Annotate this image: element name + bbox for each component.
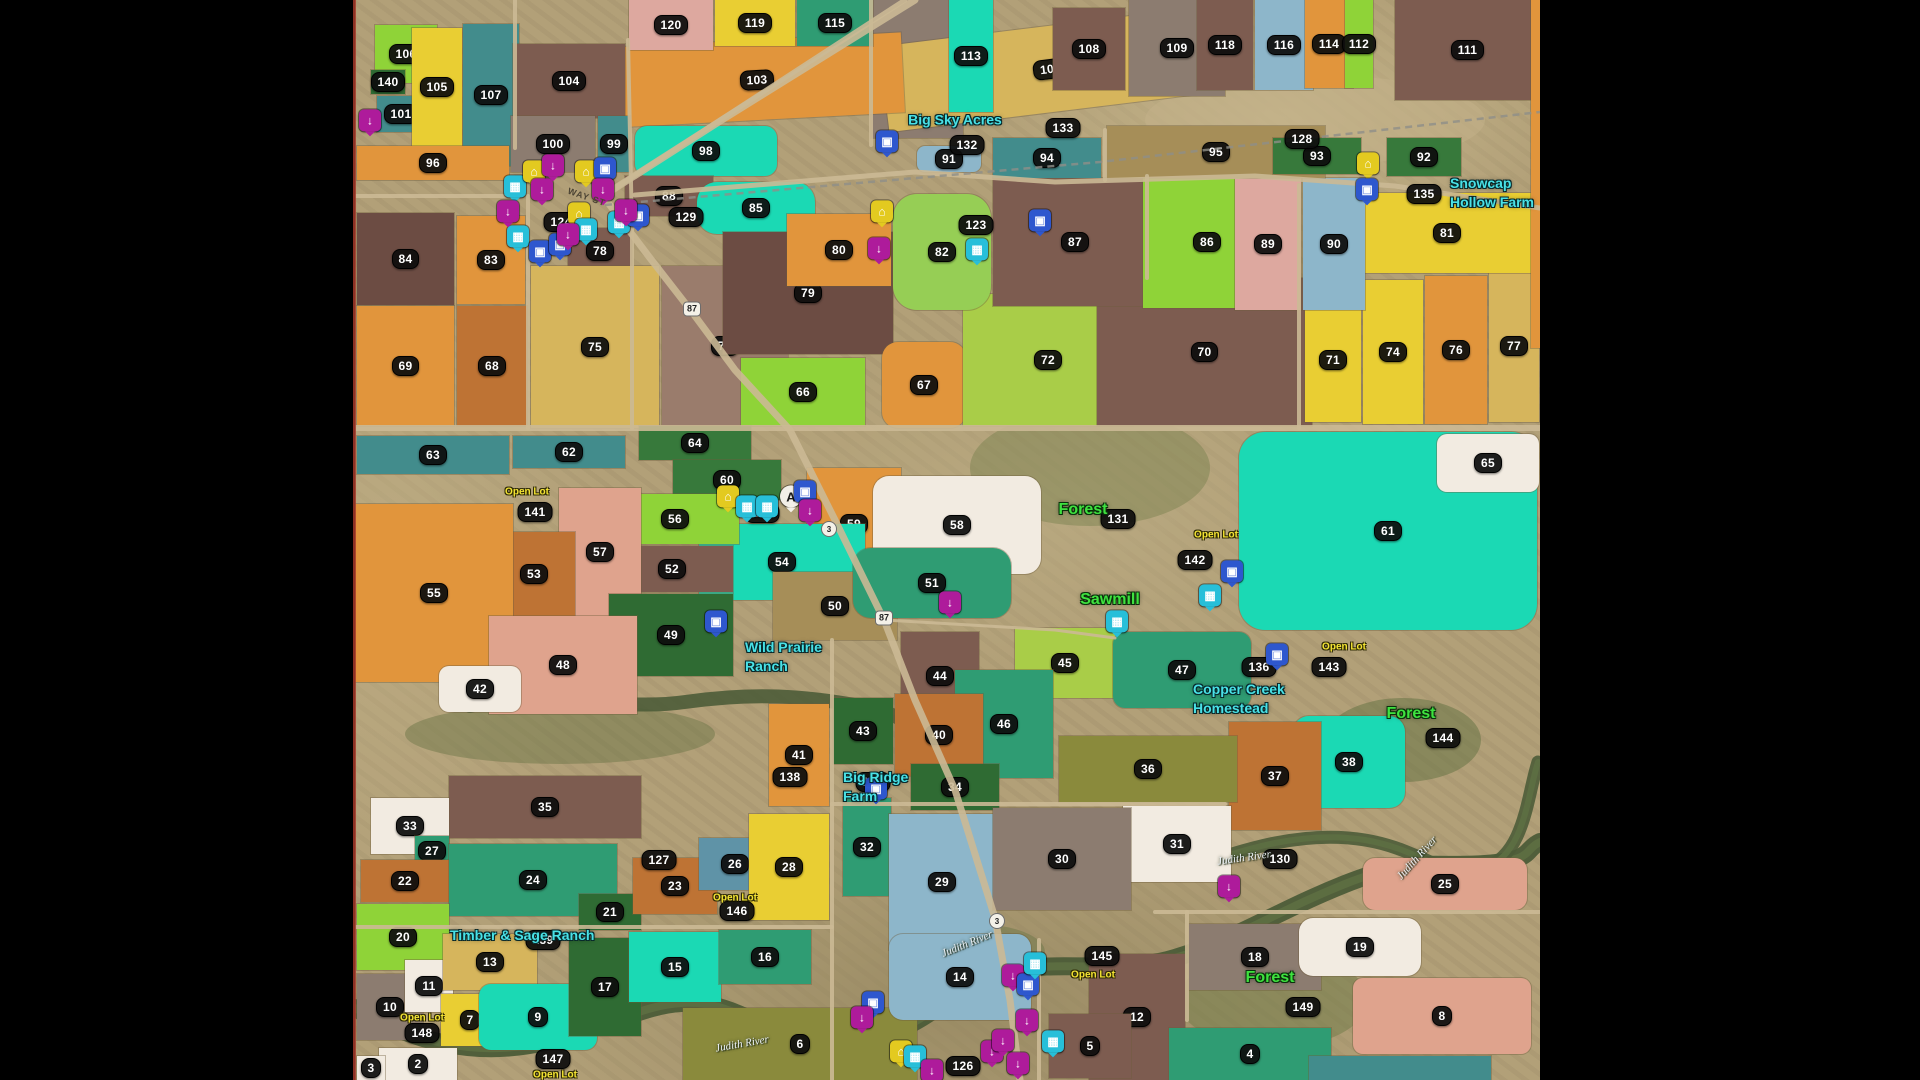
field-parcel[interactable]: 104 <box>513 44 625 118</box>
field-parcel[interactable]: 25 <box>1363 858 1527 910</box>
field-parcel[interactable]: 37 <box>1229 722 1321 830</box>
field-number-badge: 44 <box>926 666 954 686</box>
field-parcel[interactable]: 76 <box>1425 276 1487 424</box>
field-parcel[interactable]: 66 <box>741 358 865 426</box>
field-parcel[interactable]: 2 <box>379 1048 457 1080</box>
open-lot-label: Open Lot <box>1322 642 1366 653</box>
sawmill-label: Sawmill <box>1080 591 1140 609</box>
field-number-badge: 40 <box>925 725 953 745</box>
field-number-badge: 52 <box>658 559 686 579</box>
lot-number-badge: 148 <box>405 1023 440 1043</box>
sellpoint-icon[interactable]: ↓ <box>939 591 961 613</box>
sellpoint-icon[interactable]: ↓ <box>531 178 553 200</box>
field-number-badge: 20 <box>389 927 417 947</box>
field-number-badge: 56 <box>661 509 689 529</box>
lot-number-badge: 149 <box>1286 997 1321 1017</box>
field-number-badge: 3 <box>361 1058 382 1078</box>
field-number-badge: 84 <box>392 249 420 269</box>
field-parcel[interactable]: 68 <box>457 306 527 426</box>
field-number-badge: 116 <box>1267 35 1301 55</box>
field-number-badge: 82 <box>928 242 956 262</box>
field-parcel[interactable]: 21 <box>579 894 641 930</box>
map-edge-line <box>353 0 356 1080</box>
field-number-badge: 45 <box>1051 653 1079 673</box>
field-number-badge: 98 <box>692 141 720 161</box>
field-parcel[interactable]: 19 <box>1299 918 1421 976</box>
farm-name-label: Big Ridge Farm <box>843 768 908 806</box>
field-parcel[interactable]: 35 <box>449 776 641 838</box>
field-parcel[interactable]: 71 <box>1305 298 1361 422</box>
sellpoint-icon[interactable]: ↓ <box>799 499 821 521</box>
field-number-badge: 63 <box>419 445 447 465</box>
field-number-badge: 25 <box>1431 874 1459 894</box>
field-parcel[interactable]: 112 <box>1345 0 1373 88</box>
lot-number-badge: 126 <box>946 1056 981 1076</box>
open-lot-label: Open Lot <box>1071 970 1115 981</box>
sellpoint-icon[interactable]: ↓ <box>557 223 579 245</box>
sellpoint-icon[interactable]: ↓ <box>1007 1052 1029 1074</box>
lot-number-badge: 145 <box>1085 946 1120 966</box>
field-number-badge: 87 <box>1061 232 1089 252</box>
field-number-badge: 27 <box>418 841 446 861</box>
field-parcel[interactable]: 63 <box>357 436 509 474</box>
lot-number-badge: 141 <box>518 502 553 522</box>
field-number-badge: 109 <box>1160 38 1195 58</box>
field-number-badge: 70 <box>1191 342 1219 362</box>
lot-number-badge: 133 <box>1046 118 1081 138</box>
field-parcel[interactable]: 31 <box>1123 806 1231 882</box>
field-number-badge: 66 <box>789 382 817 402</box>
fuel-station-icon[interactable]: ▣ <box>594 157 616 179</box>
field-number-badge: 113 <box>954 46 988 66</box>
field-parcel[interactable]: 115 <box>797 0 873 46</box>
field-number-badge: 118 <box>1208 35 1242 55</box>
route-87-marker: 87 <box>683 302 701 317</box>
route-3-marker: 3 <box>821 521 837 537</box>
field-number-badge: 90 <box>1320 234 1348 254</box>
field-number-badge: 80 <box>825 240 853 260</box>
field-parcel[interactable]: 98 <box>635 126 777 176</box>
field-parcel[interactable]: 43 <box>833 698 893 764</box>
field-number-badge: 47 <box>1168 660 1196 680</box>
field-number-badge: 22 <box>391 871 419 891</box>
field-number-badge: 24 <box>519 870 547 890</box>
field-number-badge: 79 <box>794 283 822 303</box>
field-number-badge: 30 <box>1048 849 1076 869</box>
field-number-badge: 9 <box>528 1007 549 1027</box>
field-number-badge: 54 <box>768 552 796 572</box>
field-number-badge: 85 <box>742 198 770 218</box>
field-parcel[interactable]: 8 <box>1353 978 1531 1054</box>
field-parcel[interactable]: 111 <box>1395 0 1540 100</box>
field-number-badge: 53 <box>520 564 548 584</box>
lot-number-badge: 147 <box>536 1049 571 1069</box>
lot-number-badge: 142 <box>1178 550 1213 570</box>
production-icon[interactable]: ▦ <box>736 495 758 517</box>
route-87-marker: 87 <box>875 611 893 626</box>
open-lot-label: Open Lot <box>1194 530 1238 541</box>
field-parcel[interactable]: 16 <box>719 930 811 984</box>
field-parcel[interactable]: 140 <box>371 70 405 94</box>
field-number-badge: 42 <box>466 679 494 699</box>
field-parcel[interactable]: 62 <box>513 436 625 468</box>
field-parcel[interactable]: 32 <box>843 798 891 896</box>
field-number-badge: 112 <box>1342 34 1376 54</box>
sellpoint-icon[interactable]: ↓ <box>1218 875 1240 897</box>
field-number-badge: 32 <box>853 837 881 857</box>
production-icon[interactable]: ▦ <box>1024 952 1046 974</box>
field-parcel[interactable]: 34 <box>911 764 999 810</box>
field-number-badge: 49 <box>657 625 685 645</box>
field-number-badge: 38 <box>1335 752 1363 772</box>
field-number-badge: 57 <box>586 542 614 562</box>
field-number-badge: 119 <box>738 13 772 33</box>
fuel-station-icon[interactable]: ▣ <box>1029 209 1051 231</box>
field-number-badge: 69 <box>392 356 420 376</box>
field-parcel[interactable]: 28 <box>749 814 829 920</box>
field-number-badge: 6 <box>790 1034 811 1054</box>
field-number-badge: 51 <box>918 573 946 593</box>
field-number-badge: 107 <box>474 85 509 105</box>
field-number-badge: 114 <box>1312 34 1346 54</box>
field-parcel[interactable]: 96 <box>357 146 509 180</box>
field-number-badge: 64 <box>681 433 709 453</box>
field-number-badge: 108 <box>1072 39 1107 59</box>
field-number-badge: 81 <box>1433 223 1461 243</box>
sellpoint-icon[interactable]: ↓ <box>992 1029 1014 1051</box>
field-parcel[interactable]: 84 <box>357 213 454 305</box>
field-number-badge: 77 <box>1500 336 1528 356</box>
field-number-badge: 21 <box>596 902 624 922</box>
lot-number-badge: 144 <box>1426 728 1461 748</box>
field-parcel[interactable]: 74 <box>1363 280 1423 424</box>
field-number-badge: 95 <box>1202 142 1230 162</box>
field-number-badge: 17 <box>591 977 619 997</box>
route-3-marker: 3 <box>989 913 1005 929</box>
field-number-badge: 103 <box>739 69 775 91</box>
field-parcel[interactable]: 69 <box>357 306 454 426</box>
farm-map[interactable]: 1171021031061401011051071041009996988885… <box>355 0 1540 1080</box>
field-number-badge: 104 <box>552 71 587 91</box>
sellpoint-icon[interactable]: ↓ <box>851 1006 873 1028</box>
field-number-badge: 31 <box>1163 834 1191 854</box>
field-parcel[interactable]: 108 <box>1053 8 1125 90</box>
field-number-badge: 35 <box>531 797 559 817</box>
lot-number-badge: 138 <box>773 767 808 787</box>
field-number-badge: 61 <box>1374 521 1402 541</box>
field-number-badge: 8 <box>1432 1006 1453 1026</box>
field-number-badge: 23 <box>661 876 689 896</box>
field-number-badge: 43 <box>849 721 877 741</box>
fuel-station-icon[interactable]: ▣ <box>1221 560 1243 582</box>
field-number-badge: 105 <box>420 77 455 97</box>
field-number-badge: 115 <box>818 13 852 33</box>
field-number-badge: 140 <box>371 72 406 92</box>
field-number-badge: 26 <box>721 854 749 874</box>
lot-number-badge: 129 <box>669 207 704 227</box>
field-number-badge: 94 <box>1033 148 1061 168</box>
lot-number-badge: 127 <box>642 850 677 870</box>
field-number-badge: 89 <box>1254 234 1282 254</box>
field-parcel[interactable]: 92 <box>1387 138 1461 176</box>
open-lot-label: Open Lot <box>505 487 549 498</box>
field-number-badge: 7 <box>460 1010 481 1030</box>
production-icon[interactable]: ▦ <box>1199 584 1221 606</box>
field-number-badge: 5 <box>1080 1036 1101 1056</box>
field-parcel[interactable]: 87 <box>993 178 1157 306</box>
production-icon[interactable]: ▦ <box>507 225 529 247</box>
field-number-badge: 55 <box>420 583 448 603</box>
field-number-badge: 11 <box>415 976 442 996</box>
field-parcel[interactable]: 15 <box>629 932 721 1002</box>
field-parcel[interactable]: 30 <box>993 808 1131 910</box>
field-parcel[interactable]: 4 <box>1169 1028 1331 1080</box>
field-parcel[interactable]: 113 <box>949 0 993 112</box>
field-parcel[interactable] <box>1309 1056 1491 1080</box>
field-parcel[interactable]: 94 <box>993 138 1101 178</box>
fuel-station-icon[interactable]: ▣ <box>1266 643 1288 665</box>
field-number-badge: 86 <box>1193 232 1221 252</box>
lot-number-badge: 143 <box>1312 657 1347 677</box>
field-number-badge: 71 <box>1319 350 1347 370</box>
sellpoint-icon[interactable]: ↓ <box>542 154 564 176</box>
field-number-badge: 15 <box>661 957 689 977</box>
sellpoint-icon[interactable]: ↓ <box>868 237 890 259</box>
field-number-badge: 34 <box>941 777 969 797</box>
open-lot-label: Open Lot <box>713 893 757 904</box>
field-number-badge: 16 <box>751 947 779 967</box>
open-lot-label: Open Lot <box>400 1013 444 1024</box>
field-number-badge: 37 <box>1261 766 1289 786</box>
field-number-badge: 62 <box>555 442 583 462</box>
field-number-badge: 48 <box>549 655 577 675</box>
farm-name-label: Wild Prairie Ranch <box>745 638 822 676</box>
sellpoint-icon[interactable]: ↓ <box>359 109 381 131</box>
field-parcel[interactable]: 22 <box>361 860 449 902</box>
forest-label: Forest <box>1387 705 1436 723</box>
lot-number-badge: 132 <box>950 135 985 155</box>
field-parcel[interactable]: 120 <box>629 0 713 50</box>
lot-number-badge: 123 <box>959 215 994 235</box>
farm-name-label: Big Sky Acres <box>908 111 1002 130</box>
farm-name-label: Timber & Sage Ranch <box>450 926 594 945</box>
field-number-badge: 96 <box>419 153 447 173</box>
field-parcel[interactable]: 118 <box>1197 0 1253 90</box>
field-number-badge: 99 <box>600 134 628 154</box>
field-parcel[interactable]: 65 <box>1437 434 1539 492</box>
field-number-badge: 93 <box>1303 146 1331 166</box>
lot-number-badge: 135 <box>1407 184 1442 204</box>
field-number-badge: 50 <box>821 596 849 616</box>
field-parcel[interactable]: 119 <box>715 0 795 46</box>
field-parcel[interactable]: 42 <box>439 666 521 712</box>
field-parcel[interactable]: 105 <box>412 28 462 146</box>
sellpoint-icon[interactable]: ↓ <box>615 199 637 221</box>
farm-name-label: Copper Creek Homestead <box>1193 680 1285 718</box>
field-parcel[interactable]: 41 <box>769 704 829 806</box>
fuel-station-icon[interactable]: ▣ <box>1356 178 1378 200</box>
field-parcel[interactable]: 29 <box>889 814 995 950</box>
field-number-badge: 74 <box>1379 342 1407 362</box>
field-number-badge: 13 <box>476 952 504 972</box>
field-number-badge: 19 <box>1346 937 1374 957</box>
field-number-badge: 111 <box>1451 40 1485 60</box>
field-parcel[interactable]: 51 <box>853 548 1011 618</box>
field-parcel[interactable]: 36 <box>1059 736 1237 802</box>
field-number-badge: 2 <box>408 1054 429 1074</box>
field-parcel[interactable]: 89 <box>1235 178 1301 310</box>
sellpoint-icon[interactable]: ↓ <box>921 1059 943 1080</box>
fuel-station-icon[interactable]: ▣ <box>705 610 727 632</box>
field-number-badge: 46 <box>990 714 1018 734</box>
farm-name-label: Snowcap Hollow Farm <box>1450 174 1534 212</box>
field-number-badge: 65 <box>1474 453 1502 473</box>
forest-label: Forest <box>1059 501 1108 519</box>
game-screen: 1171021031061401011051071041009996988885… <box>0 0 1920 1080</box>
production-icon[interactable]: ▦ <box>756 495 778 517</box>
field-number-badge: 75 <box>581 337 609 357</box>
field-number-badge: 28 <box>775 857 803 877</box>
shop-icon[interactable]: ⌂ <box>1357 152 1379 174</box>
production-icon[interactable]: ▦ <box>966 238 988 260</box>
fuel-station-icon[interactable]: ▣ <box>876 130 898 152</box>
field-parcel[interactable]: 3 <box>357 1056 385 1080</box>
field-number-badge: 92 <box>1410 147 1438 167</box>
field-number-badge: 4 <box>1240 1044 1261 1064</box>
field-number-badge: 14 <box>946 967 974 987</box>
shop-icon[interactable]: ⌂ <box>871 200 893 222</box>
field-number-badge: 68 <box>478 356 506 376</box>
sellpoint-icon[interactable]: ↓ <box>497 200 519 222</box>
field-number-badge: 41 <box>785 745 813 765</box>
production-icon[interactable]: ▦ <box>1042 1030 1064 1052</box>
field-parcel[interactable]: 75 <box>531 266 659 428</box>
field-number-badge: 67 <box>910 375 938 395</box>
field-number-badge: 88 <box>655 186 683 206</box>
field-number-badge: 72 <box>1034 350 1062 370</box>
production-icon[interactable]: ▦ <box>1106 610 1128 632</box>
field-parcel[interactable]: 67 <box>882 342 966 428</box>
field-number-badge: 76 <box>1442 340 1470 360</box>
forest-label: Forest <box>1246 969 1295 987</box>
field-number-badge: 100 <box>536 134 571 154</box>
field-number-badge: 120 <box>654 15 689 35</box>
field-number-badge: 36 <box>1134 759 1162 779</box>
lot-number-badge: 146 <box>720 901 755 921</box>
field-number-badge: 83 <box>477 250 505 270</box>
open-lot-label: Open Lot <box>533 1070 577 1080</box>
lot-number-badge: 128 <box>1285 129 1320 149</box>
field-number-badge: 58 <box>943 515 971 535</box>
field-number-badge: 29 <box>928 872 956 892</box>
sellpoint-icon[interactable]: ↓ <box>1016 1009 1038 1031</box>
field-number-badge: 18 <box>1241 947 1269 967</box>
field-number-badge: 33 <box>396 816 424 836</box>
fuel-station-icon[interactable]: ▣ <box>529 240 551 262</box>
field-parcel[interactable]: 64 <box>639 426 751 460</box>
